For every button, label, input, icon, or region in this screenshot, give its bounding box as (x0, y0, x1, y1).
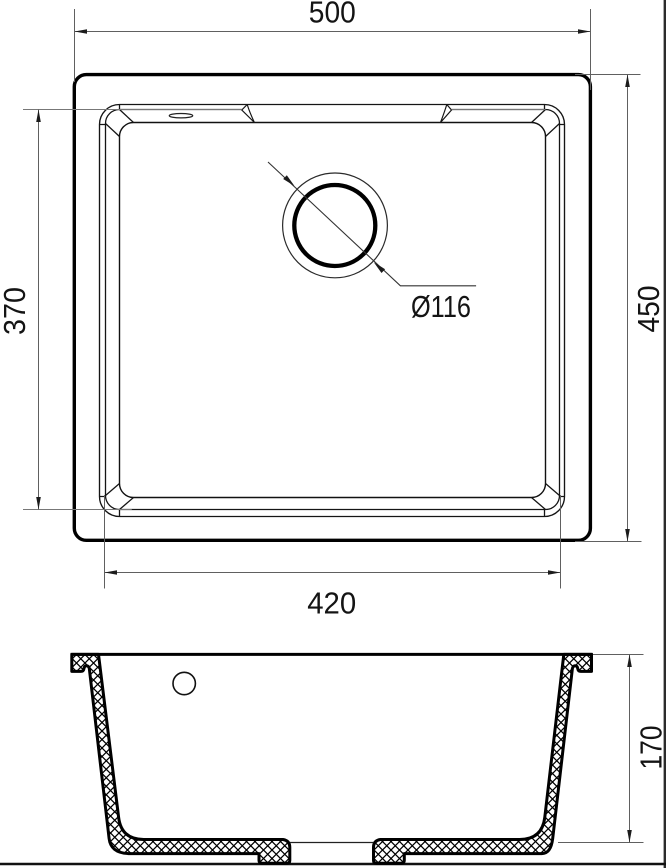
svg-text:170: 170 (634, 726, 666, 770)
svg-text:450: 450 (631, 286, 666, 333)
svg-text:370: 370 (0, 287, 32, 335)
svg-text:420: 420 (307, 586, 356, 621)
svg-text:Ø116: Ø116 (411, 289, 471, 324)
svg-text:500: 500 (309, 0, 356, 30)
